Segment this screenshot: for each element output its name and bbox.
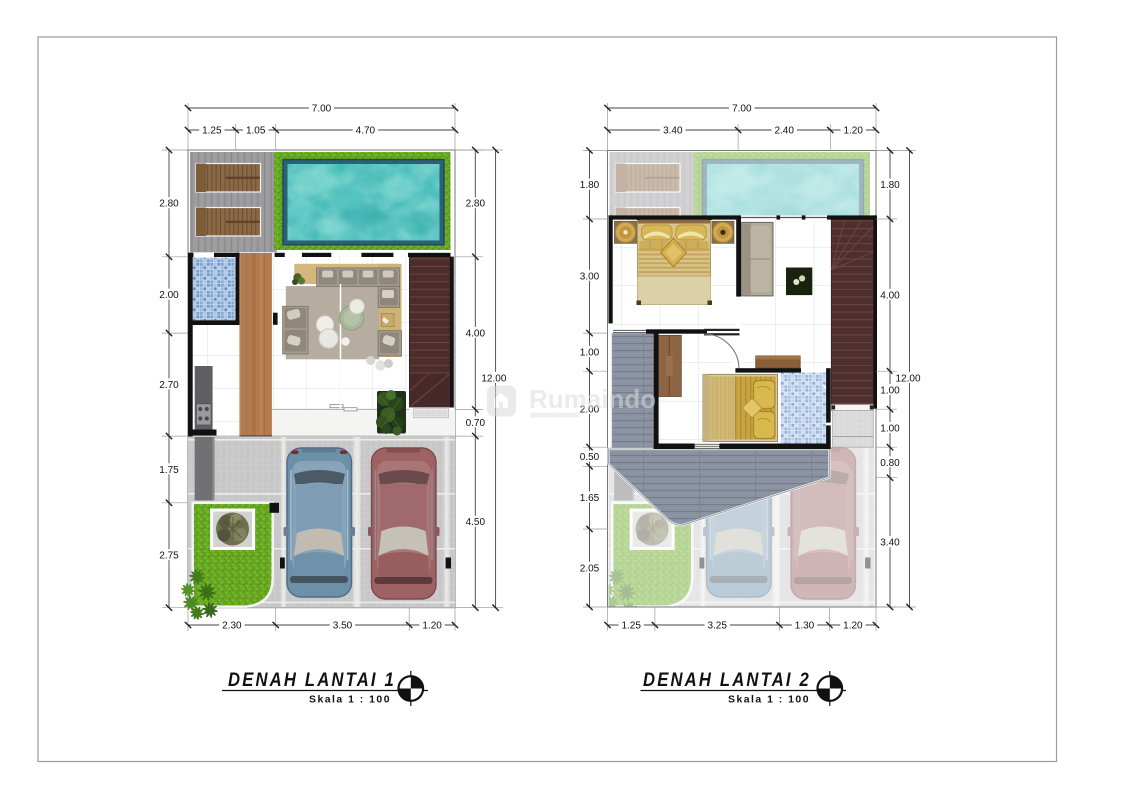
svg-text:2.70: 2.70 <box>159 380 179 391</box>
svg-text:3.40: 3.40 <box>880 538 900 549</box>
svg-text:1.05: 1.05 <box>246 125 266 136</box>
svg-text:1.80: 1.80 <box>880 180 900 191</box>
svg-text:2.80: 2.80 <box>159 199 179 210</box>
svg-text:0.50: 0.50 <box>580 452 600 463</box>
svg-text:2.80: 2.80 <box>466 199 486 210</box>
svg-text:3.50: 3.50 <box>333 620 353 631</box>
svg-text:1.00: 1.00 <box>880 424 900 435</box>
svg-text:Rumaindo: Rumaindo <box>529 384 656 414</box>
svg-text:DENAH LANTAI 2: DENAH LANTAI 2 <box>643 670 811 691</box>
svg-text:4.00: 4.00 <box>466 328 486 339</box>
svg-text:4.00: 4.00 <box>880 290 900 301</box>
svg-text:12.00: 12.00 <box>481 373 506 384</box>
svg-text:DENAH LANTAI 1: DENAH LANTAI 1 <box>228 670 396 691</box>
svg-text:1.20: 1.20 <box>422 620 442 631</box>
svg-text:7.00: 7.00 <box>312 103 332 114</box>
svg-text:2.30: 2.30 <box>222 620 242 631</box>
svg-text:1.80: 1.80 <box>580 180 600 191</box>
svg-text:1.20: 1.20 <box>843 125 863 136</box>
svg-text:4.50: 4.50 <box>466 517 486 528</box>
svg-text:0.70: 0.70 <box>466 418 486 429</box>
svg-text:0.80: 0.80 <box>880 458 900 469</box>
svg-text:1.25: 1.25 <box>202 125 222 136</box>
svg-text:3.00: 3.00 <box>580 271 600 282</box>
svg-text:1.00: 1.00 <box>880 386 900 397</box>
svg-text:2.05: 2.05 <box>580 563 600 574</box>
svg-text:2.00: 2.00 <box>159 290 179 301</box>
svg-text:2.75: 2.75 <box>159 551 179 562</box>
svg-text:1.25: 1.25 <box>621 620 641 631</box>
svg-text:3.40: 3.40 <box>663 125 683 136</box>
svg-text:1.20: 1.20 <box>843 620 863 631</box>
svg-text:1.00: 1.00 <box>580 348 600 359</box>
svg-text:2.40: 2.40 <box>774 125 794 136</box>
svg-text:1.30: 1.30 <box>795 620 815 631</box>
svg-text:1.65: 1.65 <box>580 493 600 504</box>
svg-text:Skala 1 : 100: Skala 1 : 100 <box>728 694 810 706</box>
svg-text:Skala 1 : 100: Skala 1 : 100 <box>309 694 391 706</box>
svg-text:1.75: 1.75 <box>159 465 179 476</box>
svg-text:4.70: 4.70 <box>356 125 376 136</box>
svg-text:3.25: 3.25 <box>707 620 727 631</box>
svg-text:7.00: 7.00 <box>732 103 752 114</box>
svg-text:12.00: 12.00 <box>895 373 920 384</box>
